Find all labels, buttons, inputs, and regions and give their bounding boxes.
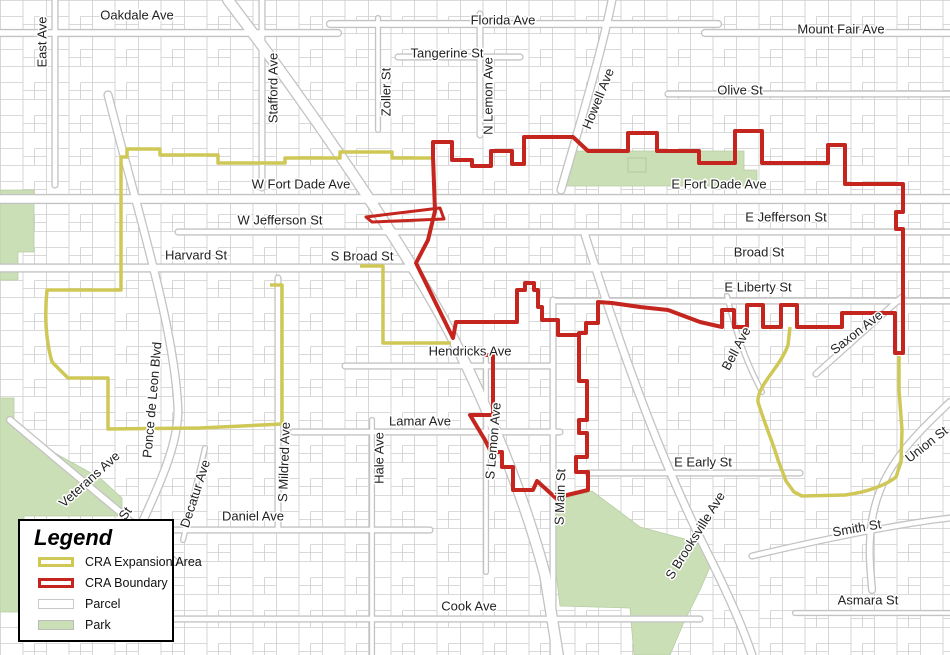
legend-item-label: CRA Expansion Area	[85, 555, 202, 569]
street-label-s-broad-st: S Broad St	[331, 248, 394, 263]
street-label-asmara-st: Asmara St	[838, 592, 899, 607]
street-label-hale-ave: Hale Ave	[371, 432, 386, 484]
legend-item-park: Park	[38, 618, 172, 632]
legend-item-parcel: Parcel	[38, 597, 172, 611]
street-label-e-liberty-st: E Liberty St	[724, 279, 792, 294]
street-label-east-ave: East Ave	[34, 16, 49, 67]
street-label-olive-st: Olive St	[717, 82, 763, 97]
street-label-tangerine-st: Tangerine St	[411, 45, 484, 60]
park-swatch	[38, 620, 74, 630]
cra-expansion-swatch	[38, 557, 74, 567]
street-label-broad-st: Broad St	[734, 244, 785, 259]
street-label-oakdale-ave: Oakdale Ave	[100, 7, 173, 22]
legend-item-label: Park	[85, 618, 111, 632]
street-label-w-fort-dade-ave: W Fort Dade Ave	[252, 176, 351, 191]
street-label-lamar-ave: Lamar Ave	[389, 413, 451, 428]
street-label-s-mildred-ave: S Mildred Ave	[275, 422, 293, 502]
street-label-hendricks-ave: Hendricks Ave	[429, 343, 512, 358]
street-label-e-fort-dade-ave: E Fort Dade Ave	[671, 176, 766, 191]
street-label-cook-ave: Cook Ave	[441, 598, 496, 613]
legend-item-label: Parcel	[85, 597, 120, 611]
street-label-harvard-st: Harvard St	[165, 247, 228, 262]
legend-item-expansion: CRA Expansion Area	[38, 555, 172, 569]
street-label-w-jefferson-st: W Jefferson St	[237, 212, 322, 227]
street-label-mount-fair-ave: Mount Fair Ave	[797, 21, 884, 36]
street-label-stafford-ave: Stafford Ave	[265, 53, 280, 123]
map-page: Oakdale AveEast AveFlorida AveTangerine …	[0, 0, 950, 655]
street-label-daniel-ave: Daniel Ave	[222, 508, 284, 523]
street-label-s-main-st: S Main St	[551, 468, 568, 525]
street-label-e-jefferson-st: E Jefferson St	[745, 209, 827, 224]
street-label-n-lemon-ave: N Lemon Ave	[480, 57, 495, 135]
legend-item-boundary: CRA Boundary	[38, 576, 172, 590]
cra-boundary-swatch	[38, 578, 74, 588]
legend-item-label: CRA Boundary	[85, 576, 168, 590]
parcel-swatch	[38, 599, 74, 609]
street-label-florida-ave: Florida Ave	[471, 12, 536, 27]
legend-box: Legend CRA Expansion Area CRA Boundary P…	[18, 519, 174, 642]
street-label-e-early-st: E Early St	[674, 454, 732, 469]
street-label-zoller-st: Zoller St	[378, 67, 393, 116]
legend-title: Legend	[34, 525, 172, 551]
